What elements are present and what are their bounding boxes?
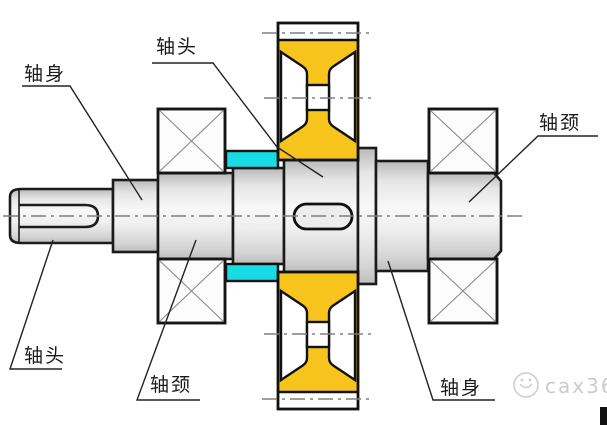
gear-web-pocket-left-top <box>281 52 307 141</box>
label-shaft-body-bottom-right: 轴身 <box>440 377 482 399</box>
corner-mark <box>600 407 607 425</box>
smiley-circle-icon <box>514 373 538 397</box>
gear-bottom-half <box>278 272 358 409</box>
gear-web-pocket-right-bottom <box>329 291 355 380</box>
gear-top-half <box>278 23 358 160</box>
smiley-eye-left <box>521 379 524 382</box>
spacer-ring-top <box>226 151 278 168</box>
label-shaft-head-top-center: 轴头 <box>156 36 198 58</box>
spacer-ring-bottom <box>226 264 278 281</box>
shaft-diagram: 轴身 轴头 轴颈 轴头 轴颈 轴身 cax360 <box>0 0 607 425</box>
gear-web-pocket-left-bottom <box>281 291 307 380</box>
label-shaft-journal-top-right: 轴颈 <box>539 112 581 134</box>
label-shaft-head-bottom-left: 轴头 <box>24 345 66 367</box>
watermark-text: cax360 <box>545 374 607 398</box>
bearing-top-right <box>429 109 497 173</box>
smiley-mouth <box>520 384 532 388</box>
diagram-svg: 轴身 轴头 轴颈 轴头 轴颈 轴身 cax360 <box>0 0 607 425</box>
label-shaft-journal-bottom-center: 轴颈 <box>150 374 192 396</box>
bearing-bottom-right <box>429 259 497 323</box>
gear-web-pocket-right-top <box>329 52 355 141</box>
smiley-eye-right <box>529 379 532 382</box>
bearing-bottom-left <box>158 259 225 323</box>
label-shaft-body-top-left: 轴身 <box>24 63 66 85</box>
watermark: cax360 <box>514 373 607 398</box>
bearing-top-left <box>158 109 225 173</box>
